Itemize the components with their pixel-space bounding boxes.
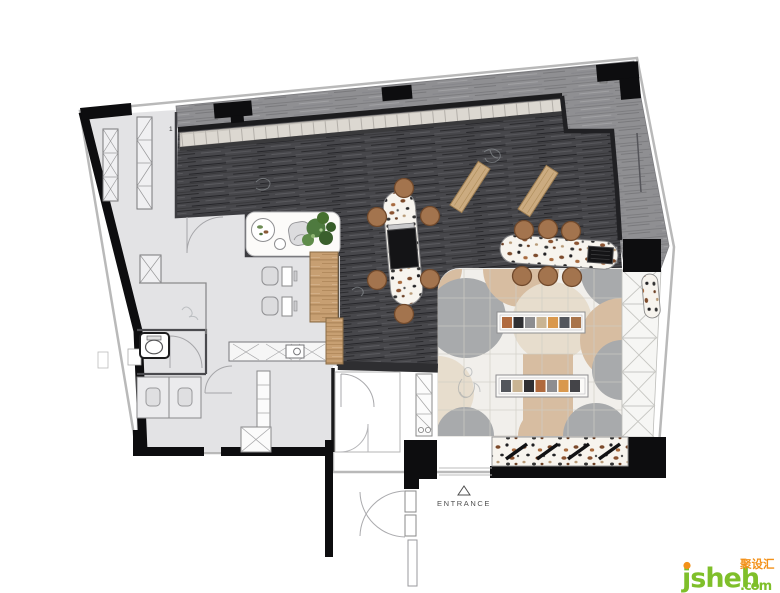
workstation-desks [137,377,201,418]
retail-tile-floor [426,269,629,436]
watermark-chinese-text: 聚设汇 [739,557,775,571]
display-items [502,317,581,328]
office-chair [262,297,278,315]
low-credenza [229,342,330,361]
office-chair [262,267,278,285]
floor-plan-page: ENTRANCE 1 jsheh 聚设汇 .com [0,0,780,593]
exterior-landing [98,352,108,368]
display-items [501,380,580,392]
bottom-right-corner [628,437,666,478]
desk-chair [178,388,192,406]
entrance-arrow-icon [458,486,470,495]
wall-shelf-unit [416,374,432,436]
printer [286,345,304,358]
storage-cabinet-x [103,129,118,201]
exterior-double-door [360,491,417,586]
unit-number-label: 1 [169,126,173,133]
storage-cabinet-tall [137,117,152,209]
watermark-logo: jsheh 聚设汇 .com [681,557,775,593]
corridor-left-wall [325,440,333,557]
top-column-2 [381,85,412,102]
entrance-pier [404,440,437,479]
desk-chair [146,388,160,406]
tile-motifs [426,269,629,436]
bottom-wall-b [221,447,333,456]
watermark-suffix-text: .com [740,579,772,593]
wall-display-niche [641,273,661,318]
bottom-wall-a [133,447,204,456]
right-column [623,239,661,272]
toilet [140,333,169,358]
watermark-j-dot-icon [683,562,690,569]
display-table-1 [497,312,585,333]
storage-cabinet-small [140,255,161,283]
cup [275,239,286,250]
floor-plan-drawing: ENTRANCE 1 jsheh 聚设汇 .com [0,0,780,593]
bottom-wall-c [490,466,640,478]
marble-column-strip [622,270,661,437]
entrance-pier-stub [404,479,419,489]
entrance-label-group: ENTRANCE [437,486,491,508]
cafe-corner [246,212,340,256]
display-table-2 [496,375,588,397]
entrance-label: ENTRANCE [437,499,491,508]
display-window [492,437,628,466]
